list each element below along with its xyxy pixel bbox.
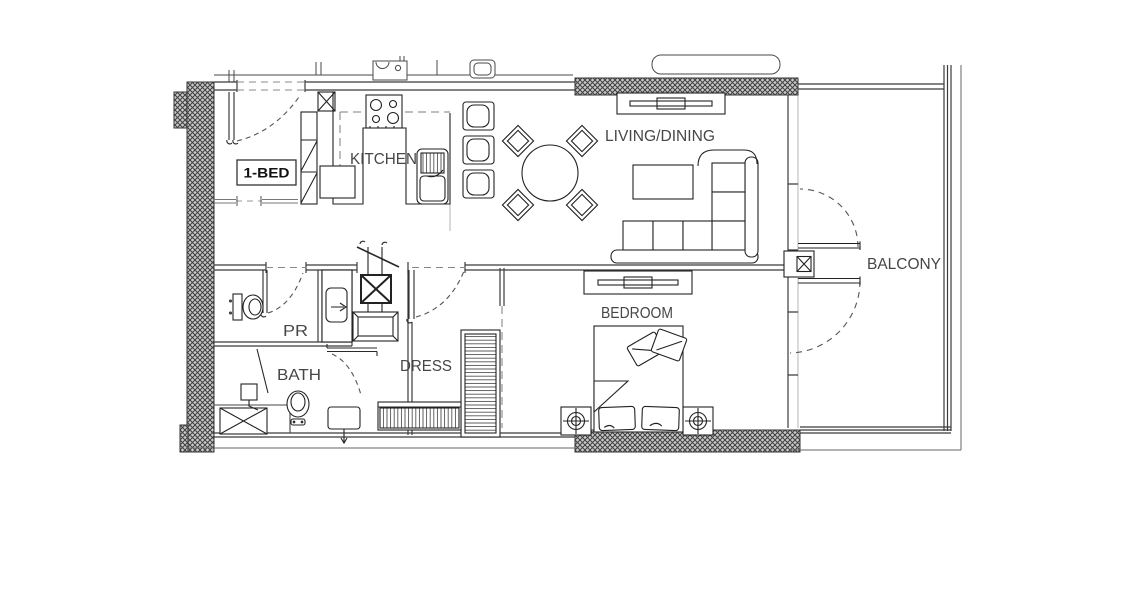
label-bedroom: BEDROOM	[601, 305, 673, 322]
bathtub-icon	[220, 408, 267, 434]
label-dress: DRESS	[400, 358, 452, 375]
floorplan-stage: KITCHEN LIVING/DINING BALCONY BEDROOM DR…	[0, 0, 1142, 606]
label-living-dining: LIVING/DINING	[605, 128, 715, 145]
wardrobe-vertical	[461, 330, 500, 437]
cooktop-icon	[366, 95, 402, 128]
label-balcony: BALCONY	[867, 256, 941, 273]
nightstand-left	[561, 407, 591, 435]
neighbour-chair	[470, 60, 495, 78]
floor-plan-canvas: KITCHEN LIVING/DINING BALCONY BEDROOM DR…	[0, 0, 1142, 606]
label-pr: PR	[283, 323, 308, 340]
ac-unit-icon	[784, 251, 814, 277]
wardrobe-horizontal	[378, 402, 461, 430]
tv-console-living	[617, 93, 725, 114]
label-bath: BATH	[277, 367, 321, 384]
kitchen-tall-cabinets	[301, 112, 317, 204]
unit-type-tag: 1-BED	[237, 160, 296, 185]
sink-icon	[417, 149, 448, 204]
neighbour-counter	[652, 55, 780, 74]
nightstand-right	[683, 407, 713, 435]
label-kitchen: KITCHEN	[350, 151, 417, 168]
plan-background	[0, 0, 1142, 606]
kitchen-base-cabinet	[320, 166, 355, 198]
tv-console-bedroom	[584, 271, 692, 294]
double-bed	[594, 326, 687, 432]
toilet-pr-icon	[230, 294, 263, 320]
pr-fixtures	[230, 294, 263, 320]
unit-type-label: 1-BED	[244, 165, 290, 181]
coffee-table	[633, 165, 693, 199]
bar-stools	[463, 102, 494, 198]
washer-cabinet-icon	[322, 270, 352, 342]
shower-tray-icon	[353, 312, 398, 341]
neighbour-sink	[373, 61, 407, 80]
shaft-duct-icon	[361, 275, 391, 303]
